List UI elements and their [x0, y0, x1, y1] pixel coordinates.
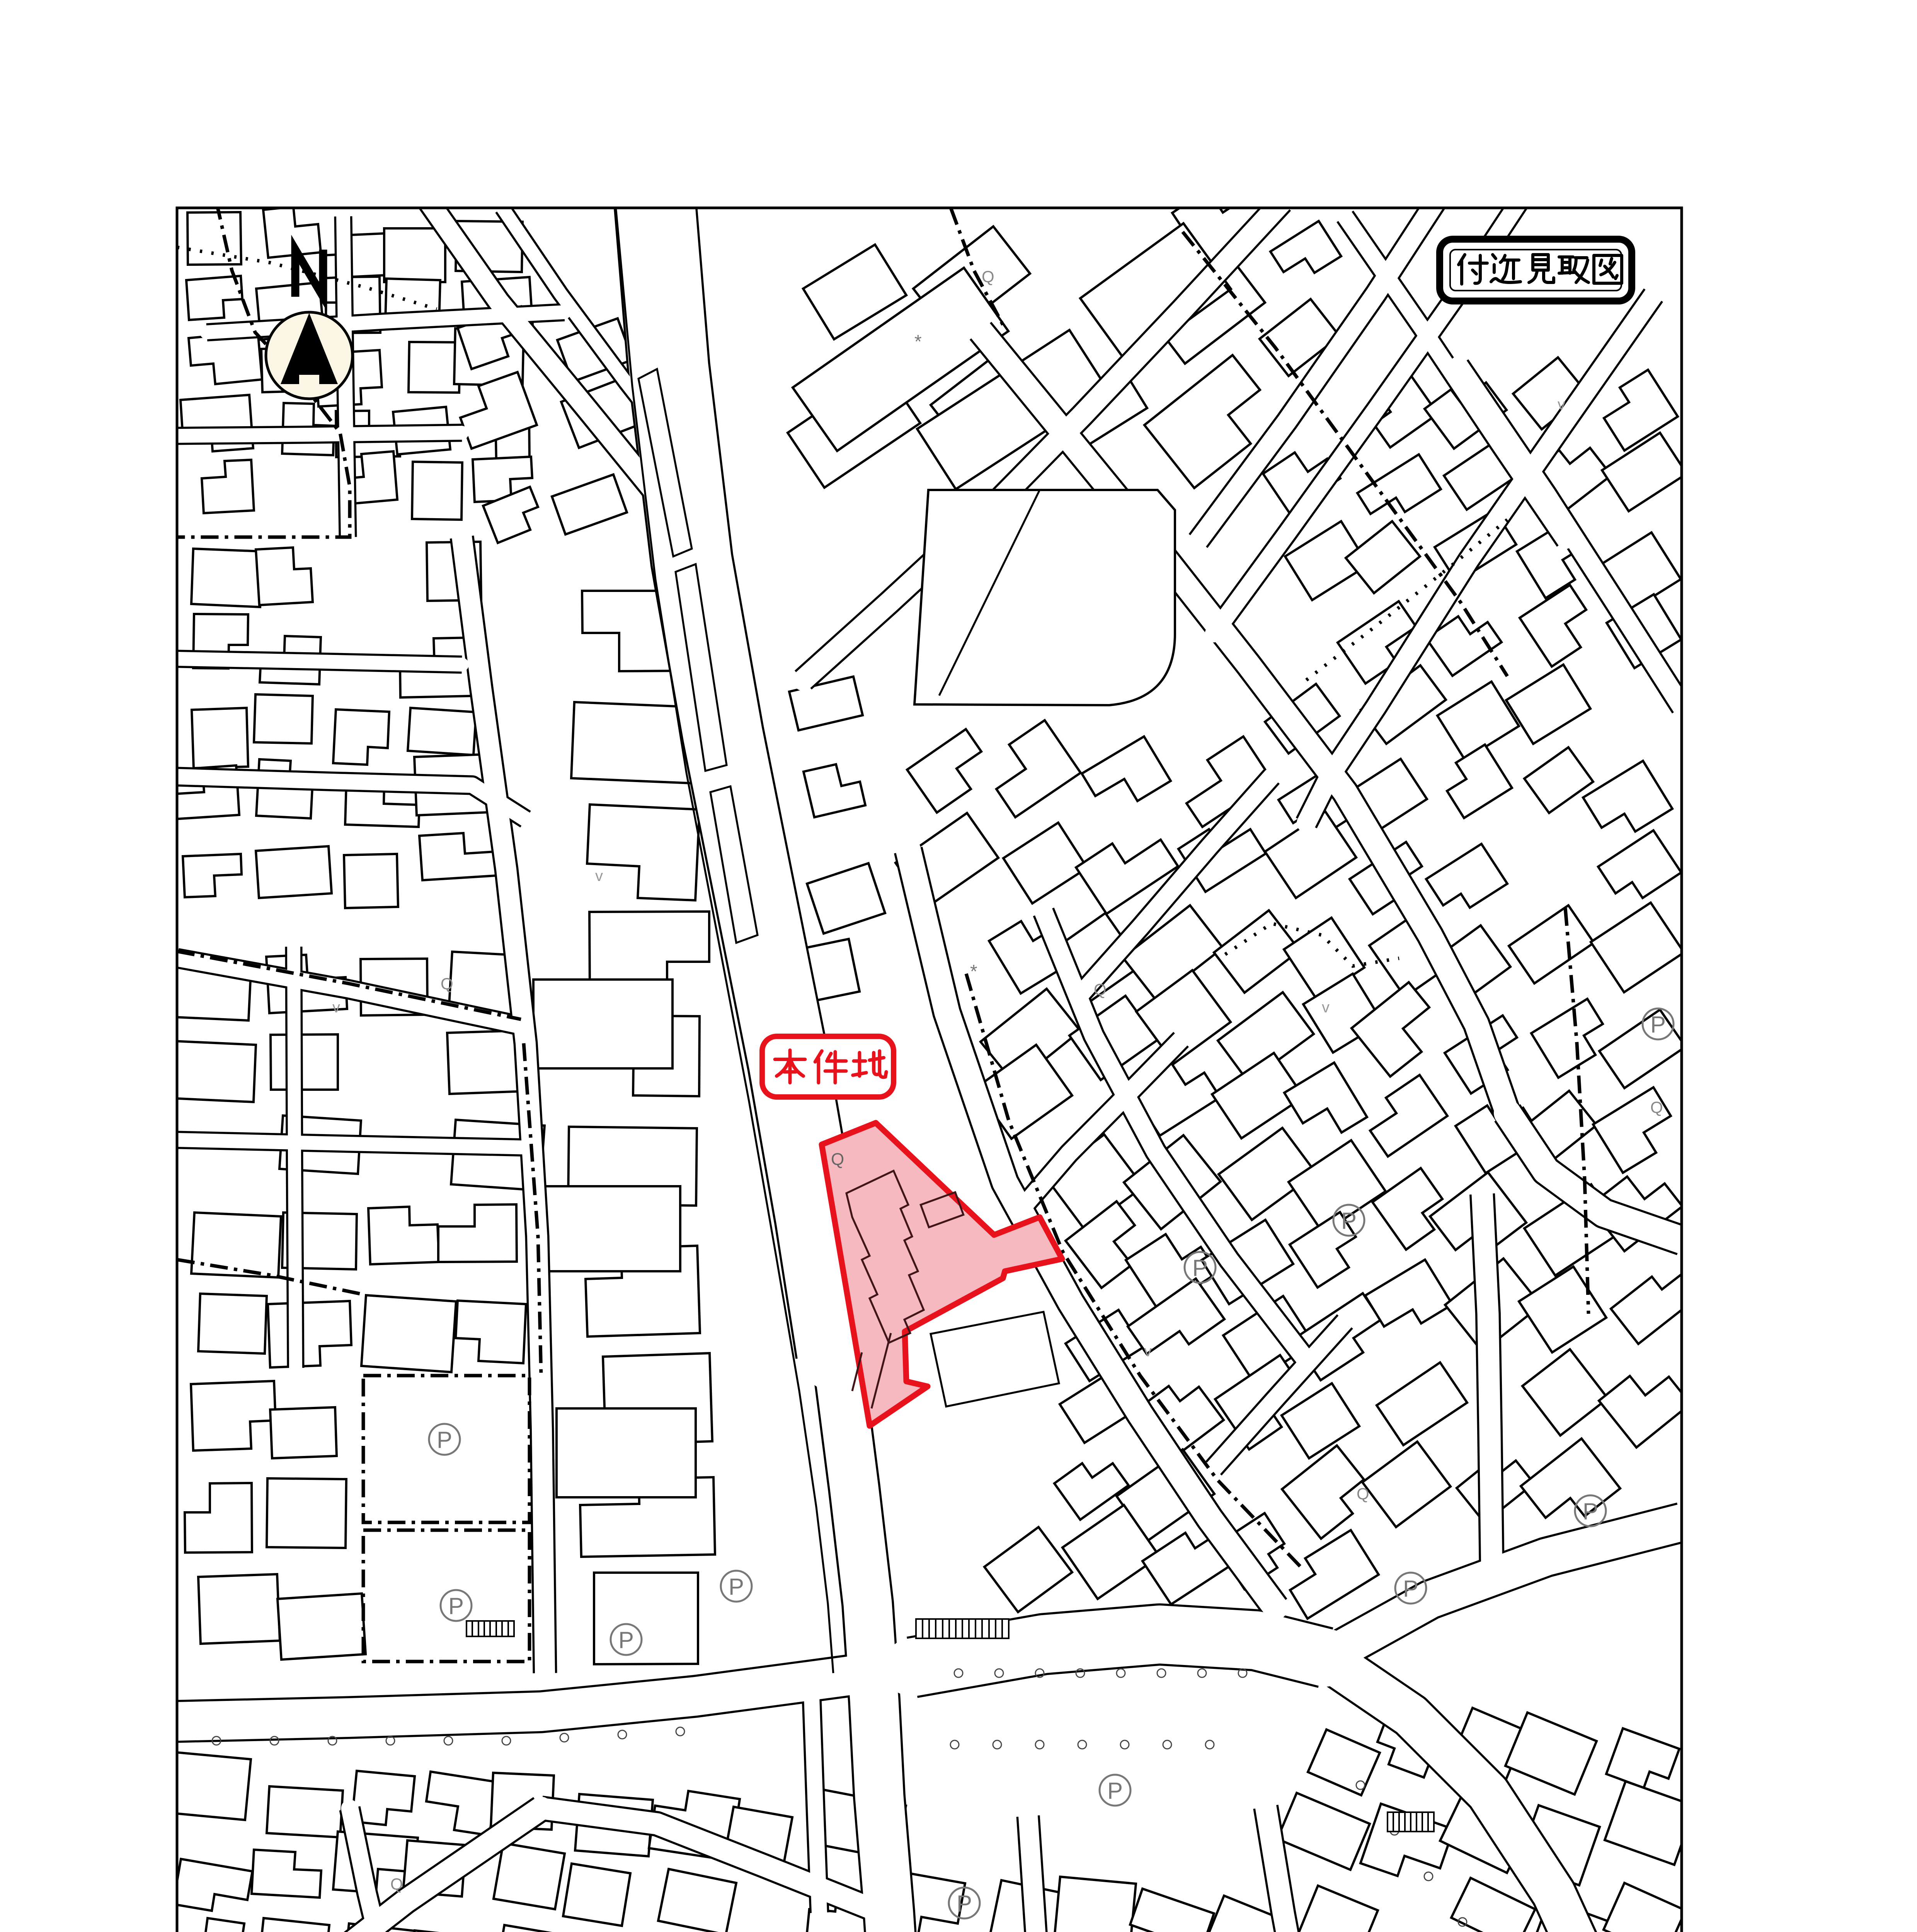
- svg-text:Q: Q: [1094, 980, 1107, 998]
- svg-text:P: P: [1341, 1208, 1357, 1234]
- svg-text:P: P: [729, 1574, 744, 1600]
- svg-text:Q: Q: [441, 975, 453, 993]
- svg-text:P: P: [1107, 1778, 1123, 1804]
- svg-text:P: P: [448, 1593, 464, 1619]
- svg-text:v: v: [1558, 396, 1565, 413]
- svg-text:P: P: [1192, 1255, 1208, 1281]
- svg-text:*: *: [970, 961, 977, 982]
- svg-text:*: *: [914, 332, 922, 352]
- svg-text:v: v: [1322, 999, 1330, 1016]
- svg-text:Q: Q: [390, 1875, 403, 1893]
- svg-text:v: v: [595, 867, 603, 884]
- svg-text:v: v: [332, 999, 340, 1016]
- svg-text:P: P: [957, 1891, 972, 1917]
- svg-text:Q: Q: [1650, 1098, 1663, 1116]
- svg-text:P: P: [618, 1627, 634, 1653]
- svg-text:Q: Q: [982, 267, 994, 286]
- svg-text:Q: Q: [831, 1150, 844, 1169]
- svg-text:P: P: [1583, 1498, 1598, 1524]
- svg-text:P: P: [437, 1427, 452, 1453]
- svg-text:P: P: [1403, 1576, 1418, 1602]
- svg-text:P: P: [1650, 1012, 1666, 1037]
- svg-text:v: v: [1144, 1343, 1152, 1360]
- svg-text:Q: Q: [1357, 1485, 1369, 1503]
